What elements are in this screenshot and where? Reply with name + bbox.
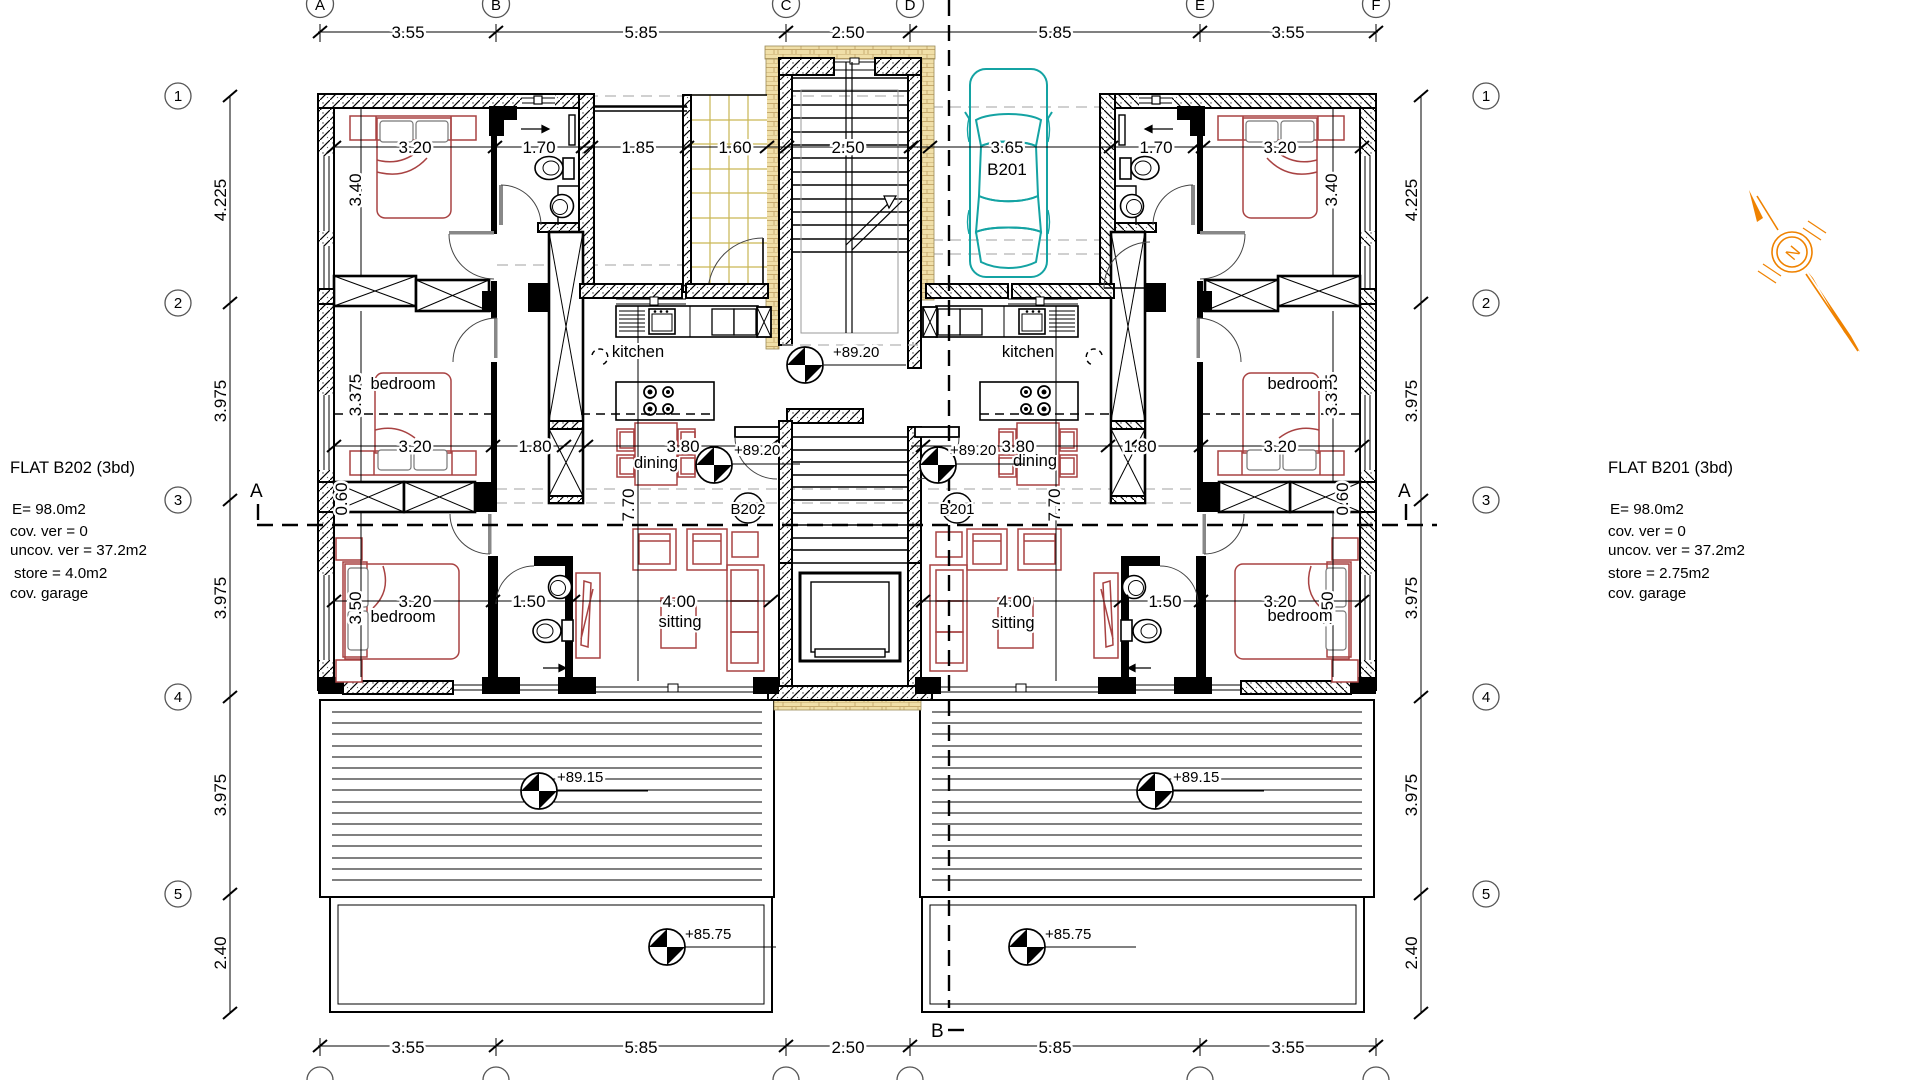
svg-text:A: A <box>315 0 325 14</box>
svg-text:0.60: 0.60 <box>1333 482 1352 515</box>
svg-text:5.85: 5.85 <box>1038 23 1071 42</box>
svg-text:3.55: 3.55 <box>391 1038 424 1057</box>
svg-text:E= 98.0m2: E= 98.0m2 <box>12 501 86 518</box>
svg-text:2.50: 2.50 <box>831 1038 864 1057</box>
svg-text:4.225: 4.225 <box>1402 179 1421 222</box>
svg-text:+89.15: +89.15 <box>1173 769 1219 786</box>
svg-text:FLAT B201 (3bd): FLAT B201 (3bd) <box>1608 459 1733 477</box>
svg-text:5: 5 <box>174 886 182 903</box>
svg-text:4.00: 4.00 <box>662 592 695 611</box>
svg-text:+89.20: +89.20 <box>833 344 879 361</box>
svg-text:uncov. ver = 37.2m2: uncov. ver = 37.2m2 <box>10 542 147 559</box>
svg-text:uncov. ver = 37.2m2: uncov. ver = 37.2m2 <box>1608 542 1745 559</box>
svg-text:1.60: 1.60 <box>718 138 751 157</box>
svg-text:2.40: 2.40 <box>1402 936 1421 969</box>
svg-text:3.20: 3.20 <box>1263 437 1296 456</box>
svg-text:5.85: 5.85 <box>1038 1038 1071 1057</box>
svg-text:B: B <box>931 1021 944 1042</box>
svg-text:2.50: 2.50 <box>831 23 864 42</box>
svg-text:3.975: 3.975 <box>1402 380 1421 423</box>
svg-text:cov. ver = 0: cov. ver = 0 <box>1608 523 1686 540</box>
svg-text:1.70: 1.70 <box>1139 138 1172 157</box>
svg-text:FLAT B202 (3bd): FLAT B202 (3bd) <box>10 459 135 477</box>
svg-text:B201: B201 <box>987 160 1027 179</box>
svg-text:3.40: 3.40 <box>1322 173 1341 206</box>
svg-text:5: 5 <box>1482 886 1490 903</box>
svg-text:1.80: 1.80 <box>1123 437 1156 456</box>
svg-text:kitchen: kitchen <box>612 343 664 361</box>
svg-text:sitting: sitting <box>991 614 1034 632</box>
svg-text:B201: B201 <box>939 501 974 518</box>
svg-text:1: 1 <box>1482 88 1490 105</box>
svg-text:dining: dining <box>634 454 678 472</box>
svg-text:C: C <box>781 0 792 14</box>
svg-text:bedroom: bedroom <box>1267 375 1332 393</box>
svg-text:4: 4 <box>1482 689 1490 706</box>
svg-text:store = 2.75m2: store = 2.75m2 <box>1608 565 1710 582</box>
svg-text:3.20: 3.20 <box>398 437 431 456</box>
svg-text:F: F <box>1371 0 1380 14</box>
svg-text:+89.20: +89.20 <box>734 442 780 459</box>
svg-text:1: 1 <box>174 88 182 105</box>
svg-text:3.975: 3.975 <box>1402 774 1421 817</box>
svg-text:1.50: 1.50 <box>1148 592 1181 611</box>
svg-text:5.85: 5.85 <box>624 23 657 42</box>
svg-text:2: 2 <box>174 295 182 312</box>
svg-text:cov. ver = 0: cov. ver = 0 <box>10 523 88 540</box>
svg-text:4.00: 4.00 <box>998 592 1031 611</box>
svg-text:1.80: 1.80 <box>518 437 551 456</box>
svg-text:3.20: 3.20 <box>398 138 431 157</box>
svg-text:dining: dining <box>1013 452 1057 470</box>
svg-text:bedroom: bedroom <box>370 375 435 393</box>
svg-text:3.375: 3.375 <box>346 374 365 417</box>
svg-text:D: D <box>905 0 916 14</box>
svg-text:store = 4.0m2: store = 4.0m2 <box>14 565 107 582</box>
svg-text:bedroom: bedroom <box>1267 607 1332 625</box>
svg-text:cov. garage: cov. garage <box>10 585 88 602</box>
svg-text:3.65: 3.65 <box>990 138 1023 157</box>
svg-text:3.55: 3.55 <box>1271 1038 1304 1057</box>
svg-text:3.40: 3.40 <box>346 173 365 206</box>
svg-text:3.55: 3.55 <box>1271 23 1304 42</box>
svg-text:3: 3 <box>1482 492 1490 509</box>
svg-text:B: B <box>491 0 501 14</box>
svg-text:kitchen: kitchen <box>1002 343 1054 361</box>
svg-text:2: 2 <box>1482 295 1490 312</box>
svg-text:4: 4 <box>174 689 182 706</box>
svg-text:sitting: sitting <box>658 613 701 631</box>
svg-text:3: 3 <box>174 492 182 509</box>
svg-text:0.60: 0.60 <box>332 482 351 515</box>
svg-text:3.975: 3.975 <box>211 774 230 817</box>
svg-text:+85.75: +85.75 <box>1045 926 1091 943</box>
svg-text:E: E <box>1195 0 1205 14</box>
svg-text:3.975: 3.975 <box>211 577 230 620</box>
svg-text:1.50: 1.50 <box>512 592 545 611</box>
svg-text:A: A <box>1398 481 1411 502</box>
svg-text:A: A <box>250 481 263 502</box>
svg-text:+89.15: +89.15 <box>557 769 603 786</box>
svg-text:2.40: 2.40 <box>211 936 230 969</box>
svg-text:7.70: 7.70 <box>1045 488 1064 521</box>
svg-text:3.975: 3.975 <box>211 380 230 423</box>
svg-text:E= 98.0m2: E= 98.0m2 <box>1610 501 1684 518</box>
svg-text:7.70: 7.70 <box>619 488 638 521</box>
svg-text:cov. garage: cov. garage <box>1608 585 1686 602</box>
svg-text:3.50: 3.50 <box>346 591 365 624</box>
svg-text:1.85: 1.85 <box>621 138 654 157</box>
svg-text:3.55: 3.55 <box>391 23 424 42</box>
svg-text:5.85: 5.85 <box>624 1038 657 1057</box>
svg-text:B202: B202 <box>730 501 765 518</box>
svg-text:+89.20: +89.20 <box>950 442 996 459</box>
svg-text:3.975: 3.975 <box>1402 577 1421 620</box>
svg-text:bedroom: bedroom <box>370 608 435 626</box>
svg-text:2.50: 2.50 <box>831 138 864 157</box>
svg-text:+85.75: +85.75 <box>685 926 731 943</box>
svg-text:4.225: 4.225 <box>211 179 230 222</box>
svg-text:1.70: 1.70 <box>522 138 555 157</box>
svg-text:3.20: 3.20 <box>1263 138 1296 157</box>
